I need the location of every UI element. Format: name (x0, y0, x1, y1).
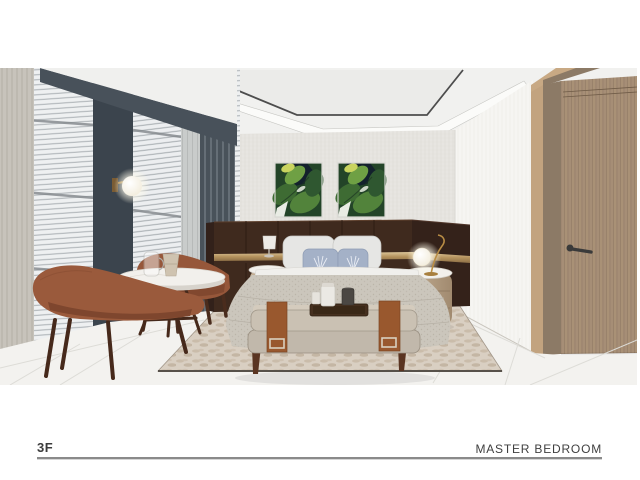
door (531, 68, 637, 358)
room-label: MASTER BEDROOM (475, 442, 602, 456)
tumbler (342, 289, 354, 305)
jar (312, 292, 320, 304)
door-frame (531, 85, 543, 356)
canister (321, 286, 335, 306)
bedroom-render (0, 68, 637, 385)
side-curtain (0, 68, 34, 350)
artwork-left (268, 162, 326, 218)
door-slab (561, 76, 637, 354)
footer-rule (37, 457, 602, 460)
vase (163, 254, 179, 276)
floor-label: 3F (37, 440, 53, 455)
sconce-globe (122, 176, 142, 196)
presentation-slide: 3F MASTER BEDROOM (0, 0, 640, 480)
artwork-right (331, 162, 389, 218)
